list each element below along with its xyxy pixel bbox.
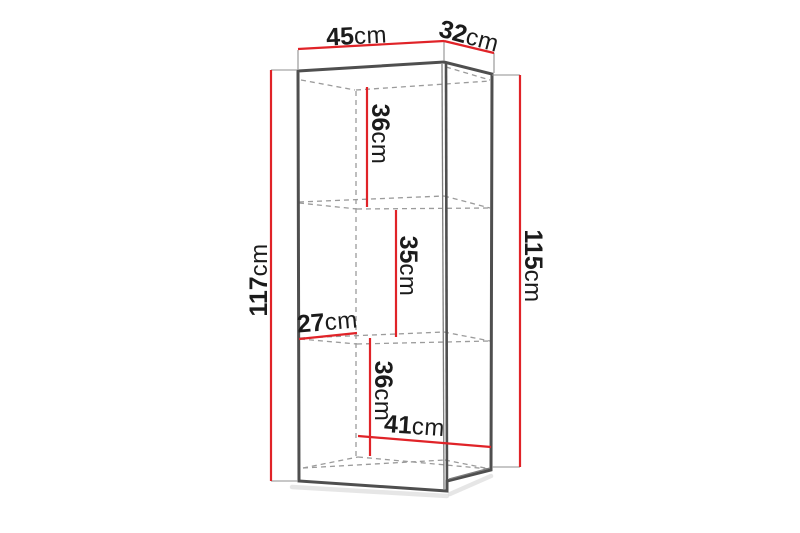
shelf-top-right-edge xyxy=(444,196,490,208)
shelf-top-front-edge xyxy=(299,196,444,202)
front-right-corner-edge xyxy=(446,63,447,490)
diagram-canvas: 45cm 32cm 36cm 35cm 36cm 117cm 115cm 27c… xyxy=(0,0,800,533)
label-height-right-115-value: 115 xyxy=(519,229,547,269)
label-height-left-117-value: 117 xyxy=(245,276,273,316)
label-depth-top-32: 32cm xyxy=(436,15,502,58)
label-depth-inner-27-value: 27 xyxy=(296,308,326,338)
label-compartment-top-36-unit: cm xyxy=(366,131,393,164)
label-compartment-top-36-value: 36 xyxy=(366,104,394,132)
hidden-top-back-edge xyxy=(356,81,490,90)
hidden-top-left-edge xyxy=(301,80,355,90)
label-height-left-117-unit: cm xyxy=(246,243,273,276)
shelf-top-left-edge xyxy=(299,203,357,209)
shelf-top-back-edge xyxy=(357,208,490,209)
label-width-top-45: 45cm xyxy=(325,20,387,51)
bottom-back-edge xyxy=(358,457,490,469)
label-compartment-top-36: 36cm xyxy=(366,104,394,165)
label-height-left-117: 117cm xyxy=(245,243,273,316)
label-width-inner-41: 41cm xyxy=(383,410,446,442)
label-depth-inner-27: 27cm xyxy=(296,305,359,338)
label-height-right-115: 115cm xyxy=(519,229,547,302)
label-compartment-mid-35-value: 35 xyxy=(394,236,422,264)
label-width-inner-41-value: 41 xyxy=(383,410,413,440)
label-compartment-bot-36-value: 36 xyxy=(369,361,397,389)
label-width-top-45-value: 45 xyxy=(325,22,354,51)
label-width-inner-41-unit: cm xyxy=(411,413,446,442)
label-height-right-115-unit: cm xyxy=(519,270,546,303)
label-width-top-45-unit: cm xyxy=(353,21,387,50)
label-compartment-mid-35-unit: cm xyxy=(394,263,421,296)
label-depth-inner-27-unit: cm xyxy=(324,306,359,336)
shelf-mid-left-edge xyxy=(300,339,357,344)
shelf-mid-right-edge xyxy=(444,332,490,341)
label-compartment-mid-35: 35cm xyxy=(394,236,422,297)
bottom-right-edge xyxy=(445,460,490,469)
label-depth-top-32-unit: cm xyxy=(463,23,502,58)
cabinet-dimension-diagram: 45cm 32cm 36cm 35cm 36cm 117cm 115cm 27c… xyxy=(0,0,800,533)
shelf-mid-back-edge xyxy=(357,341,490,344)
